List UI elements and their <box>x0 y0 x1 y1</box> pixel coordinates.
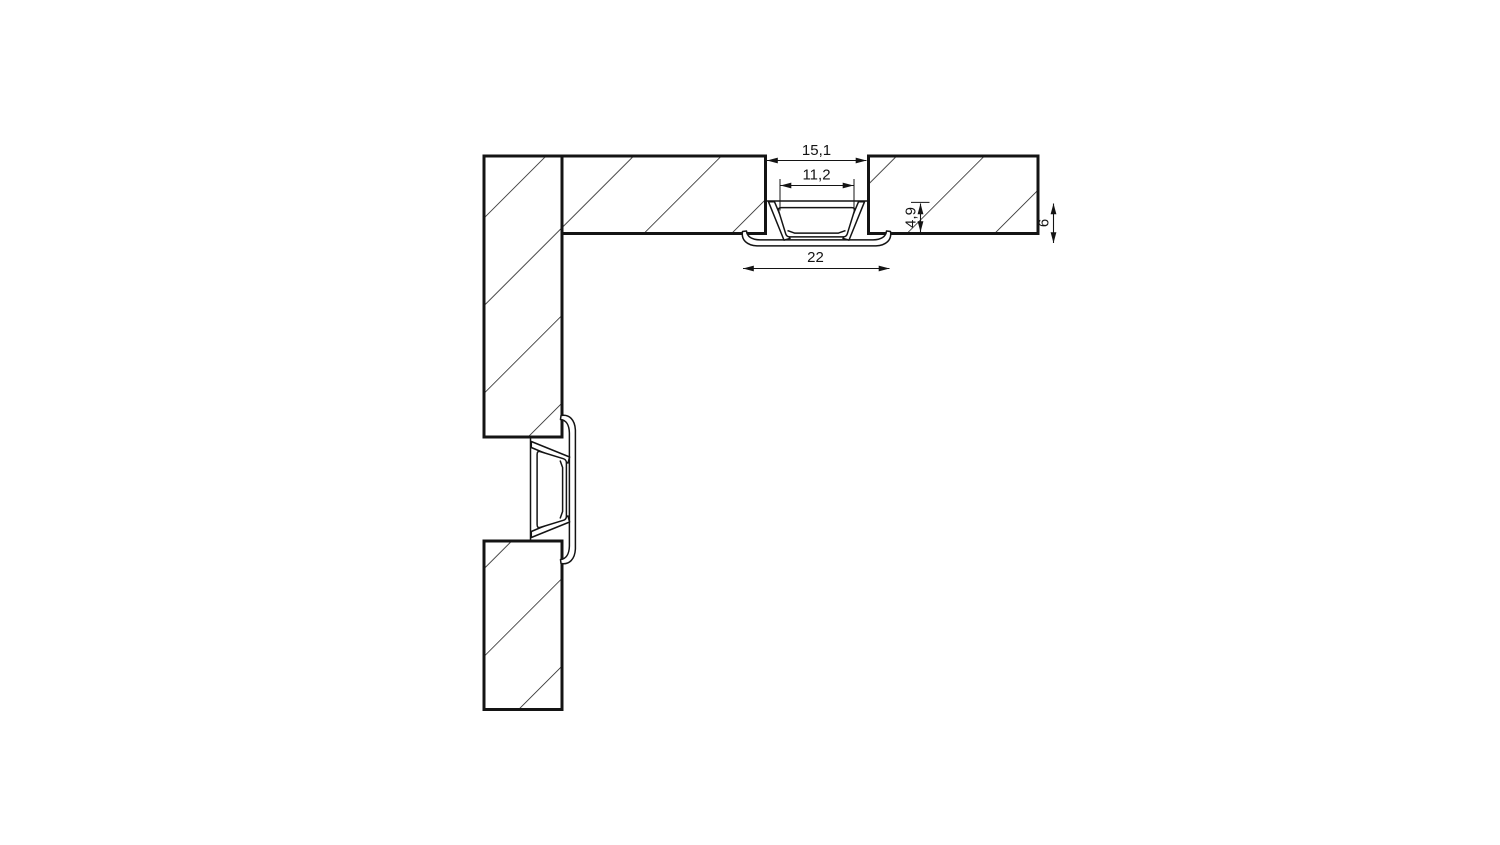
technical-drawing: 15,1 11,2 22 4,9 6 <box>0 0 1500 845</box>
panel-vertical-upper <box>484 156 562 437</box>
panel-horizontal-top <box>562 156 766 234</box>
dimension-cutout-width: 15,1 <box>767 142 867 161</box>
dimension-overall-flange-width: 22 <box>743 249 890 269</box>
dimension-label: 15,1 <box>802 142 831 159</box>
drawing-canvas: 15,1 11,2 22 4,9 6 <box>0 0 1500 845</box>
dimension-cover-visible-width: 11,2 <box>780 167 854 211</box>
panel-vertical-lower <box>484 541 562 710</box>
dimension-label: 4,9 <box>903 207 920 228</box>
dimension-label: 22 <box>807 249 824 266</box>
dimension-label: 6 <box>1036 219 1053 227</box>
panel-horizontal-right <box>869 156 1039 234</box>
dimension-label: 11,2 <box>802 167 830 184</box>
